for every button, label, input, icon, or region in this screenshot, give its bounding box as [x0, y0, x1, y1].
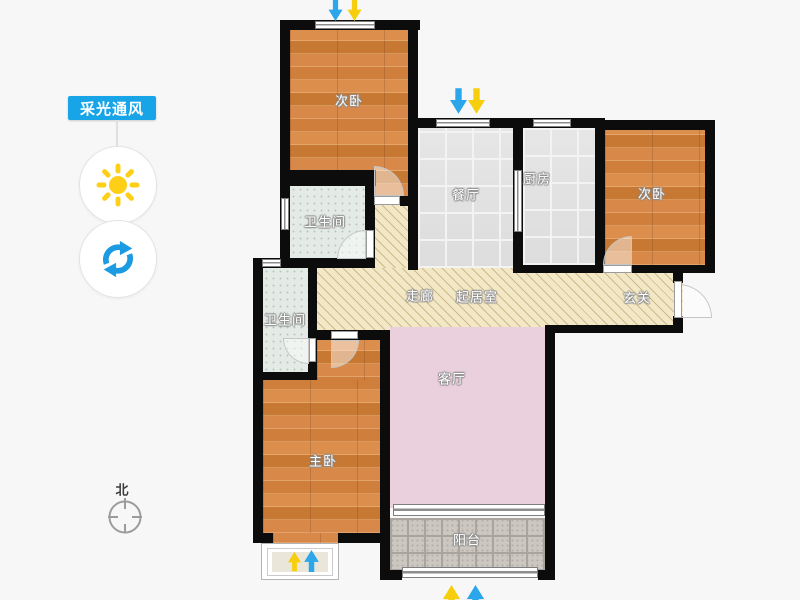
wall-segment: [253, 380, 263, 543]
sliding-door: [514, 170, 522, 232]
wall-segment: [538, 570, 555, 580]
room-label-corridor: 走廊: [406, 286, 434, 305]
window: [262, 259, 281, 267]
wall-segment: [383, 570, 402, 580]
door-frame: [374, 196, 400, 205]
wind-up-arrow-icon: [304, 550, 319, 577]
door-frame: [603, 265, 632, 273]
wall-segment: [705, 120, 715, 273]
wall-segment: [595, 120, 715, 130]
panel-connector-line: [116, 120, 118, 148]
light-up-arrow-icon: [441, 585, 462, 600]
room-label-foyer: 玄关: [623, 288, 651, 307]
room-label-bedroom-top: 次卧: [335, 91, 363, 110]
rotate-button[interactable]: [79, 220, 157, 298]
room-label-master: 主卧: [309, 451, 337, 470]
door-frame: [309, 338, 316, 362]
room-label-bath-upper: 卫生间: [304, 212, 346, 231]
room-label-living-core: 起居室: [456, 287, 498, 306]
wall-segment: [545, 325, 555, 580]
entry-door-arc: [678, 284, 712, 318]
room-label-bath-lower: 卫生间: [264, 310, 306, 329]
door-frame: [331, 331, 358, 339]
wall-segment: [555, 325, 683, 333]
room-kitchen: [523, 128, 595, 265]
floorplan-viewer: 次卧 餐厅 厨房 次卧 卫生间 卫生间 走廊 起居室 玄关 客厅 主卧 阳台 采…: [0, 0, 800, 600]
window: [533, 119, 571, 127]
window: [402, 567, 538, 578]
light-up-arrow-icon: [288, 551, 301, 577]
room-label-kitchen: 厨房: [523, 169, 551, 188]
door-frame: [366, 230, 374, 258]
wind-down-arrow-icon: [327, 0, 344, 26]
window: [281, 198, 289, 230]
wall-segment: [253, 533, 273, 543]
light-down-arrow-icon: [468, 88, 485, 119]
room-label-bedroom-right: 次卧: [638, 184, 666, 203]
entry-door-frame: [674, 281, 682, 318]
wind-down-arrow-icon: [450, 88, 467, 119]
wall-segment: [595, 118, 605, 273]
wall-segment: [253, 372, 317, 380]
wall-segment: [338, 533, 390, 543]
room-master-bay-strip: [273, 533, 338, 543]
hallway-strip: [375, 197, 408, 268]
wall-segment: [400, 196, 408, 206]
daylight-button[interactable]: [79, 146, 157, 224]
room-label-dining: 餐厅: [452, 185, 480, 204]
rotate-icon: [98, 239, 138, 279]
window: [436, 119, 490, 127]
light-down-arrow-icon: [346, 0, 363, 26]
wall-segment: [253, 258, 263, 380]
room-label-balcony: 阳台: [453, 530, 481, 549]
north-compass-icon: [104, 497, 146, 537]
room-label-living: 客厅: [438, 369, 466, 388]
north-label: 北: [115, 480, 128, 499]
balcony-sliding-door: [393, 504, 545, 516]
wall-segment: [282, 170, 376, 186]
sun-icon: [95, 162, 141, 208]
room-living: [390, 327, 545, 508]
daylight-ventilation-tab[interactable]: 采光通风: [68, 96, 156, 120]
wall-segment: [280, 20, 290, 268]
wind-up-arrow-icon: [465, 585, 486, 600]
window: [315, 21, 375, 29]
wall-segment: [408, 20, 418, 270]
